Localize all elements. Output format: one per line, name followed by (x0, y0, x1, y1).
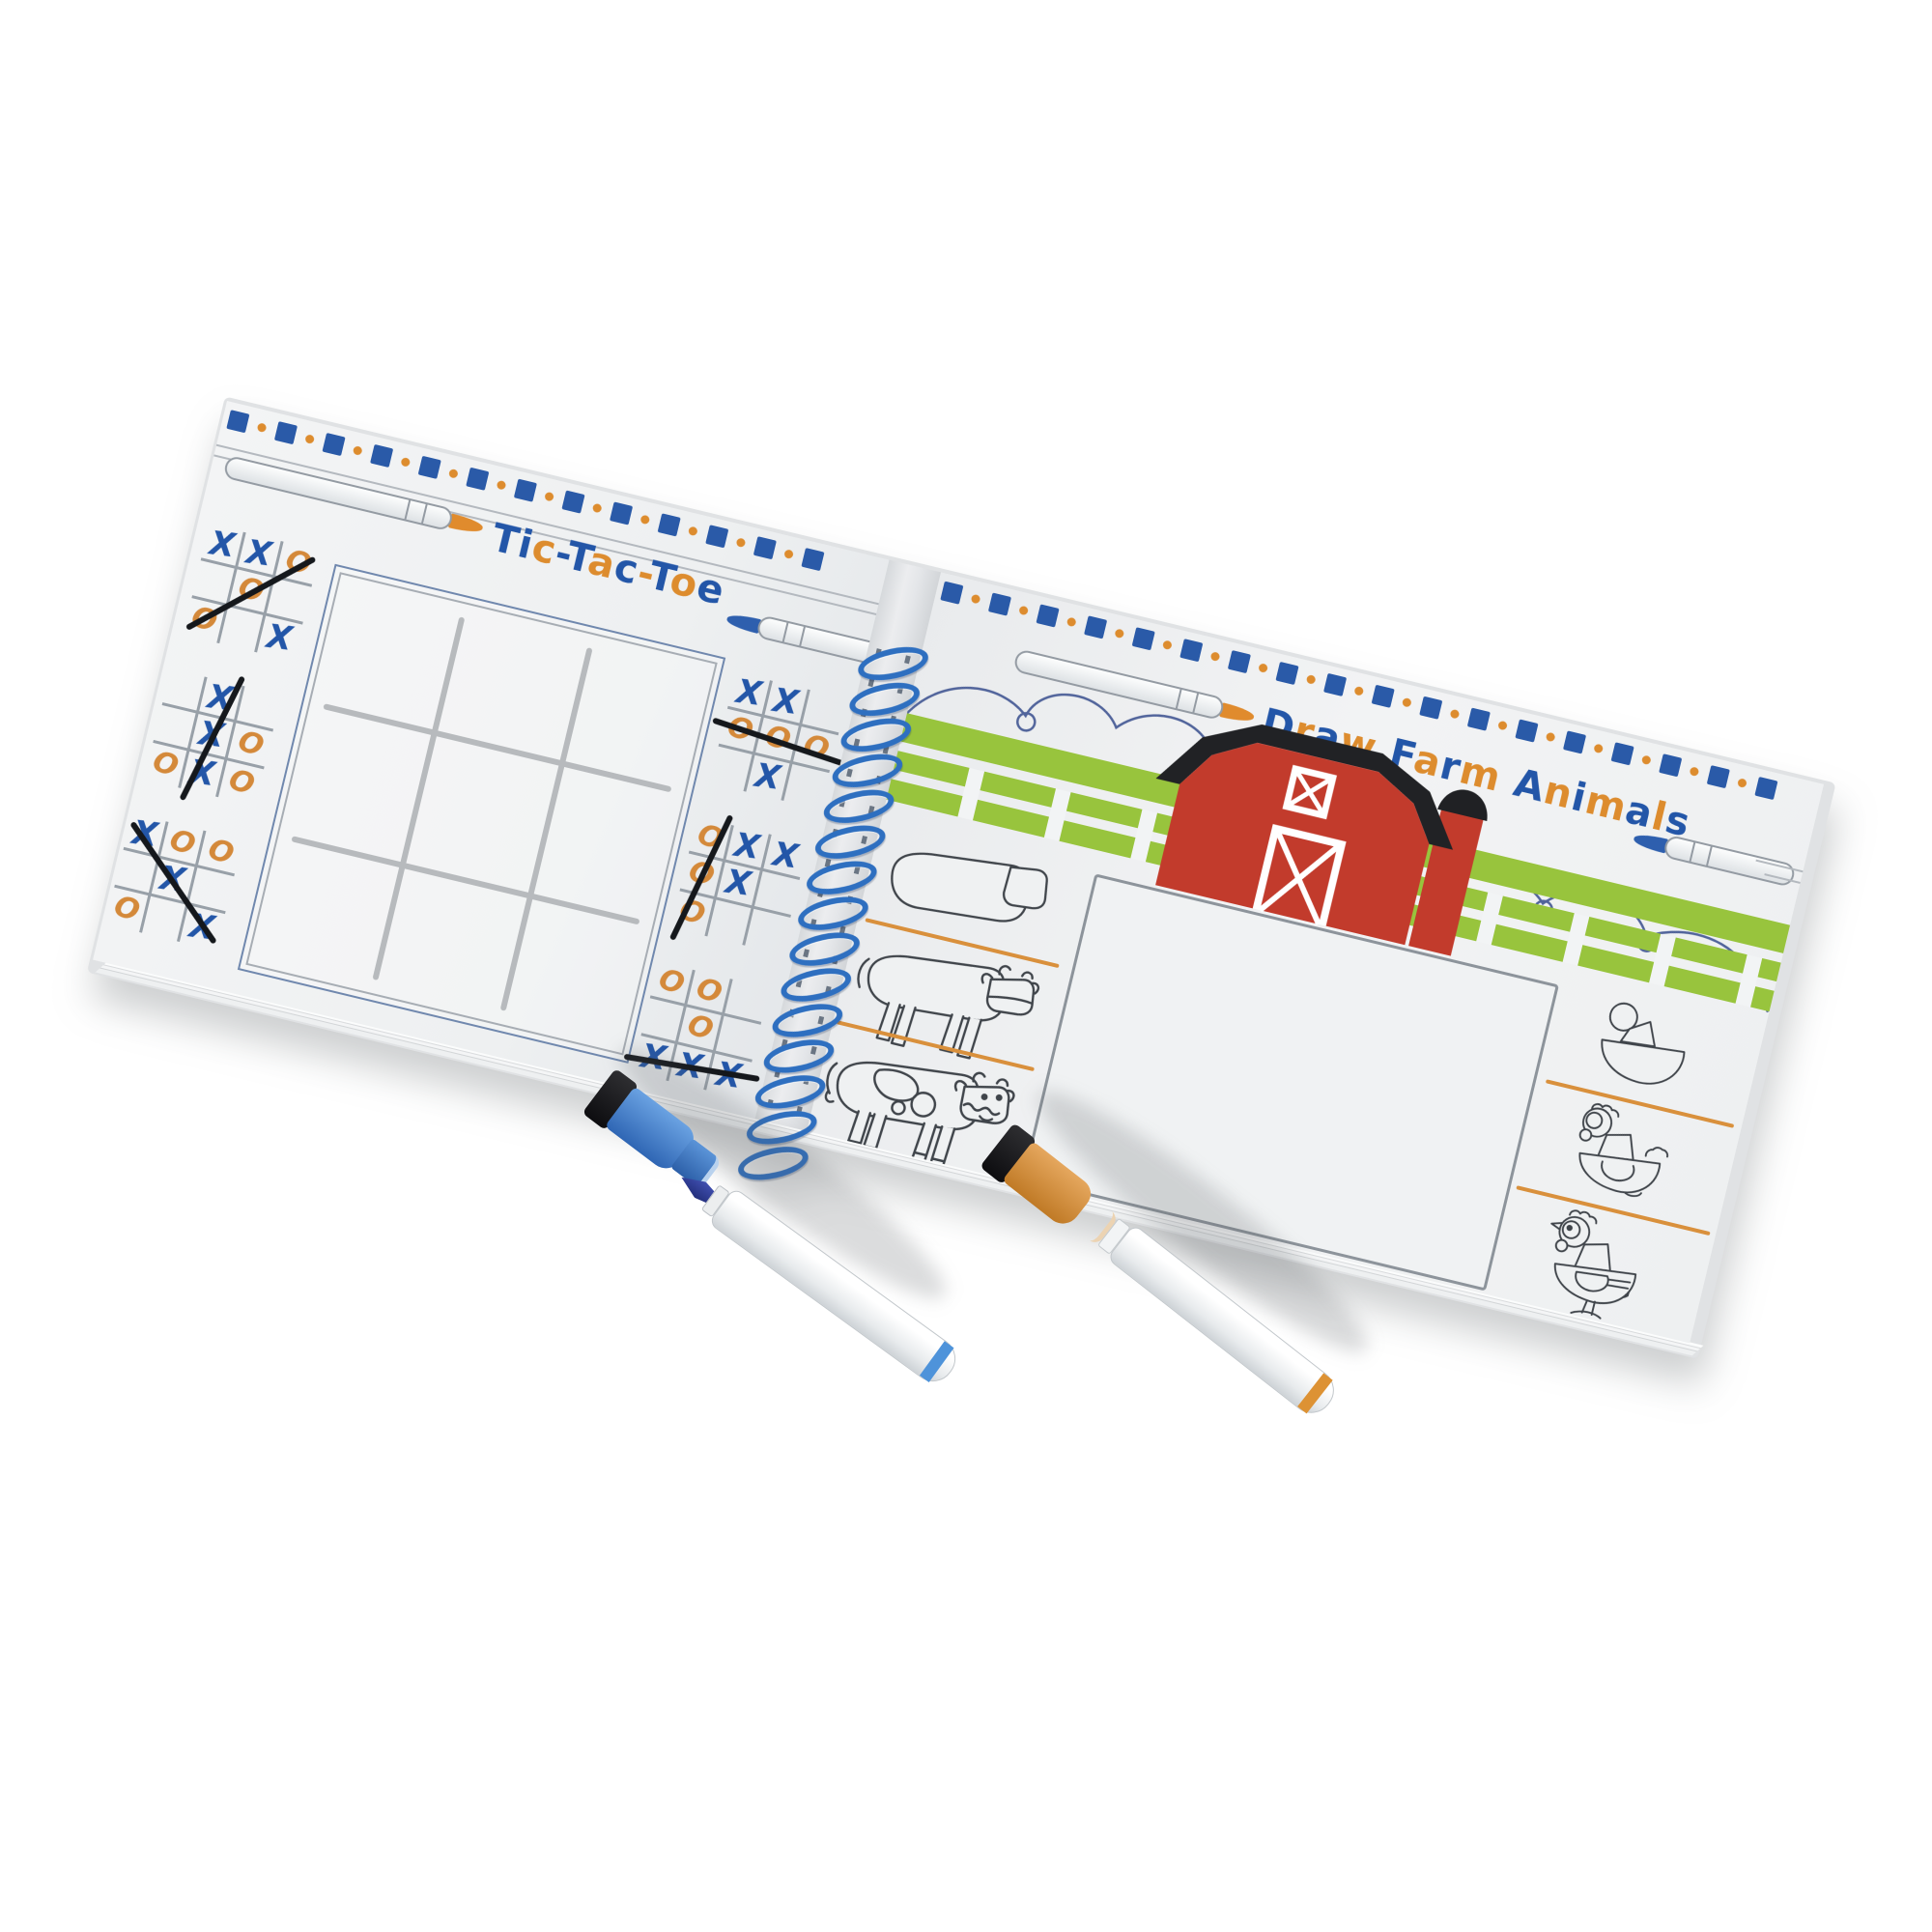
mini-board: XXOOOX (183, 524, 320, 661)
activity-book: Tic-Tac-Toe XXOOOX XXOOXO XOOXOX XXOOOX … (93, 401, 1824, 1343)
scene: Tic-Tac-Toe XXOOOX XXOOXO XOOXOX XXOOOX … (0, 0, 1932, 1932)
grid-line (323, 703, 672, 792)
end-ring (1297, 1373, 1333, 1413)
grid-line (500, 647, 593, 1010)
rule-line (216, 444, 879, 606)
left-page: Tic-Tac-Toe XXOOOX XXOOXO XOOXOX XXOOOX … (93, 401, 889, 1119)
right-page: Draw Farm Animals (807, 572, 1824, 1343)
grid-line (372, 617, 465, 980)
grid-line (291, 837, 640, 925)
mini-board: XXOOXO (144, 668, 281, 806)
mini-board: XOOXOX (105, 813, 242, 951)
marker-tip-icon (447, 513, 485, 535)
end-ring (920, 1341, 954, 1382)
mini-board: OXXOXO (670, 817, 808, 954)
